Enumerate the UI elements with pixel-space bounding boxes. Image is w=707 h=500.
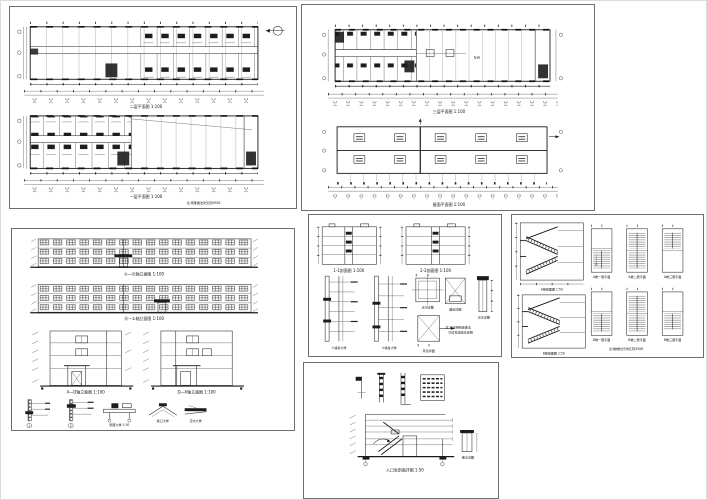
node-detail-4 bbox=[421, 375, 445, 401]
duct-plan-title: 风道详图 bbox=[423, 348, 435, 353]
gutter-plan-title: 天沟详图 bbox=[422, 305, 434, 310]
entry-section: 入口处剖面详图 1:50 bbox=[350, 414, 454, 472]
svg-text:均详见建施总说明: 均详见建施总说明 bbox=[448, 329, 472, 334]
stair-plan-2: A梯二层平面 bbox=[627, 226, 648, 279]
roof-vents bbox=[354, 134, 527, 164]
panel-plan-and-roof: 车间 三层平面图 1:100 bbox=[301, 4, 595, 211]
section-1-1: 1-1剖面图 1:100 bbox=[318, 224, 380, 273]
section-1-1-title: 1-1剖面图 1:100 bbox=[333, 268, 364, 273]
wall-detail-1-number: 1 bbox=[28, 424, 30, 428]
first-floor-plan-title: 一层平面图 1:100 bbox=[130, 194, 163, 199]
back-elevation: ⑮—①轴立面图 1:100 bbox=[30, 284, 258, 321]
stair-plan-6: B梯三层平面 bbox=[662, 289, 683, 342]
sections-drawing: 1-1剖面图 1:100 2-2剖面图 1:100 bbox=[309, 215, 501, 356]
third-floor-plan: 车间 三层平面图 1:100 bbox=[323, 26, 563, 114]
stair-plan-3-title: A梯三层平面 bbox=[664, 274, 681, 279]
wall-detail-2: 2 bbox=[67, 399, 94, 428]
third-floor-plan-title: 三层平面图 1:100 bbox=[433, 109, 466, 114]
sections-note: 注:未注明构造做法 均详见建施总说明 bbox=[445, 324, 472, 334]
first-floor-plan-note: 注:雨蓬做法详见苏J9501 bbox=[187, 200, 221, 205]
second-floor-plan-title: 二层平面图 1:100 bbox=[130, 104, 163, 109]
panel-elevations: ①—⑮轴立面图 1:100 ⑮—①轴立面图 1:100 bbox=[11, 228, 295, 431]
stair-section-b-title: B梯剖面图 1:50 bbox=[543, 351, 565, 356]
apron-detail-label: 散水详图 bbox=[462, 455, 474, 460]
side-elevation-b: D—A轴立面图 1:100 bbox=[143, 331, 244, 394]
panel-floor-plans: 二层平面图 1:100 bbox=[9, 6, 297, 209]
floor-plans-drawing: 二层平面图 1:100 bbox=[10, 7, 296, 208]
side-elevation-a: A—D轴立面图 1:100 bbox=[32, 331, 133, 394]
stair-plan-1: A梯一层平面 bbox=[591, 226, 612, 279]
eave-detail: 檐口大样 bbox=[149, 403, 177, 423]
node-detail-2 bbox=[377, 373, 385, 403]
section-2-2: 2-2剖面图 1:100 bbox=[402, 224, 469, 273]
stair-plan-4: B梯一层平面 bbox=[591, 289, 612, 342]
eave-detail-label: 檐口大样 bbox=[157, 418, 169, 423]
flue-plan-detail: 烟道详图 bbox=[445, 278, 465, 312]
stair-section-a: A梯剖面图 1:50 bbox=[516, 223, 583, 292]
panel-entry-detail: 入口处剖面详图 1:50 散水详图 bbox=[303, 362, 499, 499]
canopy-detail: 雨蓬大样 1:30 bbox=[103, 403, 135, 427]
node-detail-1 bbox=[356, 377, 366, 399]
cad-sheet: 二层平面图 1:100 bbox=[0, 0, 707, 500]
back-elevation-title: ⑮—①轴立面图 1:100 bbox=[124, 316, 164, 321]
stair-plan-2-title: A梯二层平面 bbox=[628, 274, 645, 279]
stair-section-a-title: A梯剖面图 1:50 bbox=[541, 286, 563, 291]
canopy-detail-label: 雨蓬大样 1:30 bbox=[109, 422, 129, 427]
hall-label: 车间 bbox=[474, 54, 480, 59]
flashing-detail-label: 泛水大样 bbox=[189, 418, 201, 423]
node-detail-3 bbox=[401, 373, 411, 405]
flashing-detail: 泛水大样 bbox=[185, 405, 207, 423]
entry-section-title: 入口处剖面详图 1:50 bbox=[386, 467, 424, 472]
flashing-section-detail: 泛水详图 bbox=[477, 276, 492, 319]
north-arrow-icon bbox=[266, 26, 285, 35]
wall-section-2-title: ②墙身大样 bbox=[382, 345, 397, 350]
stairs-drawing: A梯剖面图 1:50 B梯剖面图 1:50 bbox=[512, 215, 703, 357]
flue-plan-title: 烟道详图 bbox=[449, 307, 461, 312]
side-elevation-b-title: D—A轴立面图 1:100 bbox=[177, 389, 216, 394]
stair-plan-4-title: B梯一层平面 bbox=[593, 337, 610, 342]
gutter-plan-detail: 天沟详图 bbox=[412, 274, 444, 310]
front-elevation-title: ①—⑮轴立面图 1:100 bbox=[124, 272, 164, 277]
roof-plan: 屋面平面图 1:100 bbox=[323, 118, 563, 207]
wall-section-2: ②墙身大样 bbox=[372, 276, 407, 350]
stair-plan-6-title: B梯三层平面 bbox=[664, 337, 681, 342]
stairs-note: 注:楼梯栏杆详见苏J9508 bbox=[609, 346, 643, 351]
wall-detail-2-number: 2 bbox=[70, 424, 72, 428]
roof-plan-title: 屋面平面图 1:100 bbox=[433, 202, 466, 207]
plan-and-roof-drawing: 车间 三层平面图 1:100 bbox=[302, 5, 594, 210]
svg-text:注:未注明构造做法: 注:未注明构造做法 bbox=[445, 324, 470, 329]
second-floor-plan: 二层平面图 1:100 bbox=[18, 23, 264, 109]
wall-section-1-title: ①墙身大样 bbox=[331, 345, 346, 350]
apron-detail: 散水详图 bbox=[460, 430, 477, 460]
side-elevation-a-title: A—D轴立面图 1:100 bbox=[67, 389, 106, 394]
flashing-section-title: 泛水详图 bbox=[478, 315, 490, 320]
stair-plan-3: A梯三层平面 bbox=[662, 226, 683, 279]
section-2-2-title: 2-2剖面图 1:100 bbox=[420, 268, 451, 273]
panel-sections-details: 1-1剖面图 1:100 2-2剖面图 1:100 bbox=[308, 214, 502, 357]
front-elevation: ①—⑮轴立面图 1:100 bbox=[30, 239, 258, 277]
wall-detail-1: 1 bbox=[25, 399, 50, 428]
stair-plan-5: B梯二层平面 bbox=[627, 289, 648, 342]
panel-stair-details: A梯剖面图 1:50 B梯剖面图 1:50 bbox=[511, 214, 704, 358]
elevations-drawing: ①—⑮轴立面图 1:100 ⑮—①轴立面图 1:100 bbox=[12, 229, 294, 430]
stair-plan-1-title: A梯一层平面 bbox=[593, 274, 610, 279]
entry-detail-drawing: 入口处剖面详图 1:50 散水详图 bbox=[304, 363, 498, 498]
first-floor-plan: 一层平面图 1:100 注:雨蓬做法详见苏J9501 bbox=[18, 116, 264, 205]
stair-section-b: B梯剖面图 1:50 bbox=[518, 295, 585, 356]
wall-section-1: ①墙身大样 bbox=[323, 276, 358, 350]
stair-plan-5-title: B梯二层平面 bbox=[628, 337, 645, 342]
